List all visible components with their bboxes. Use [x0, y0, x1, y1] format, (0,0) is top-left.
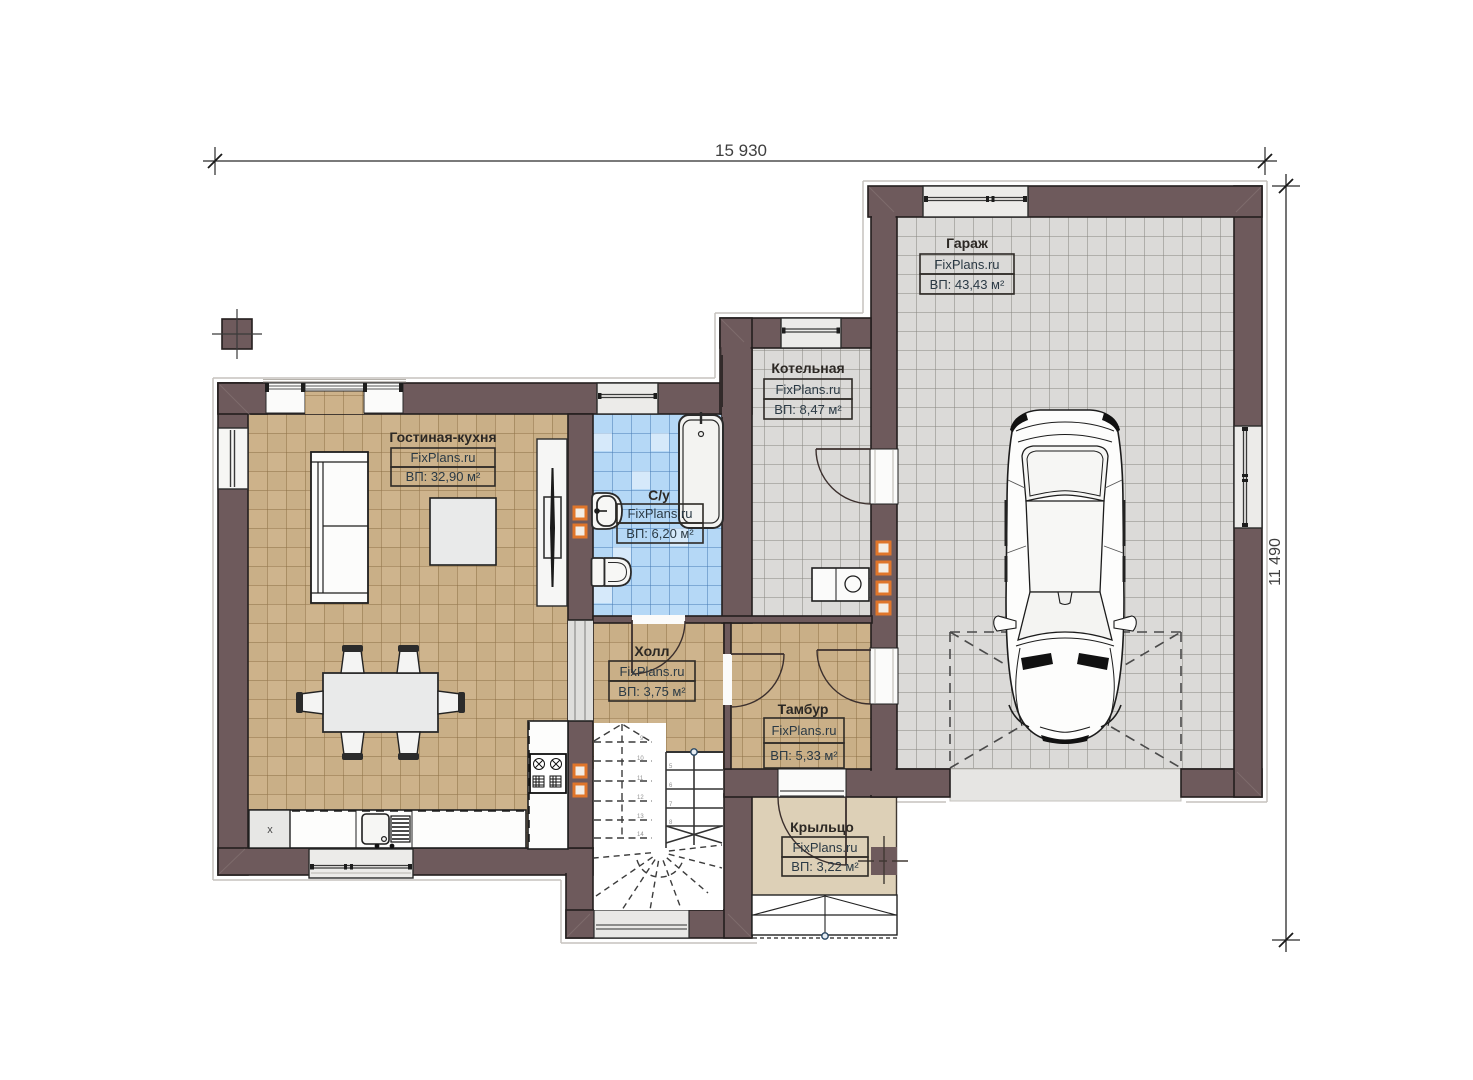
svg-text:x: x	[267, 824, 273, 836]
svg-text:15 930: 15 930	[715, 141, 767, 160]
svg-text:FixPlans.ru: FixPlans.ru	[775, 382, 840, 397]
svg-text:ВП: 32,90 м²: ВП: 32,90 м²	[406, 469, 481, 484]
svg-text:13: 13	[637, 814, 644, 820]
svg-text:ВП: 8,47 м²: ВП: 8,47 м²	[774, 402, 842, 417]
svg-text:14: 14	[637, 832, 644, 838]
svg-text:Гараж: Гараж	[946, 235, 989, 251]
svg-text:ВП: 6,20 м²: ВП: 6,20 м²	[626, 526, 694, 541]
svg-text:12: 12	[637, 795, 644, 801]
svg-text:ВП: 3,75 м²: ВП: 3,75 м²	[618, 684, 686, 699]
svg-text:FixPlans.ru: FixPlans.ru	[792, 840, 857, 855]
svg-text:С/у: С/у	[648, 487, 670, 503]
svg-text:10: 10	[637, 756, 644, 762]
svg-text:Котельная: Котельная	[771, 360, 844, 376]
svg-text:FixPlans.ru: FixPlans.ru	[619, 664, 684, 679]
svg-text:Тамбур: Тамбур	[778, 701, 829, 717]
svg-text:FixPlans.ru: FixPlans.ru	[627, 506, 692, 521]
svg-text:Крыльцо: Крыльцо	[790, 819, 854, 835]
svg-text:11: 11	[637, 776, 644, 782]
svg-text:FixPlans.ru: FixPlans.ru	[410, 450, 475, 465]
svg-text:11 490: 11 490	[1267, 538, 1284, 586]
svg-text:FixPlans.ru: FixPlans.ru	[934, 257, 999, 272]
svg-text:Гостиная-кухня: Гостиная-кухня	[389, 429, 496, 445]
svg-text:FixPlans.ru: FixPlans.ru	[771, 723, 836, 738]
svg-text:ВП: 3,22 м²: ВП: 3,22 м²	[791, 859, 859, 874]
svg-text:ВП: 5,33 м²: ВП: 5,33 м²	[770, 748, 838, 763]
svg-text:Холл: Холл	[634, 643, 669, 659]
svg-text:ВП: 43,43 м²: ВП: 43,43 м²	[930, 277, 1005, 292]
